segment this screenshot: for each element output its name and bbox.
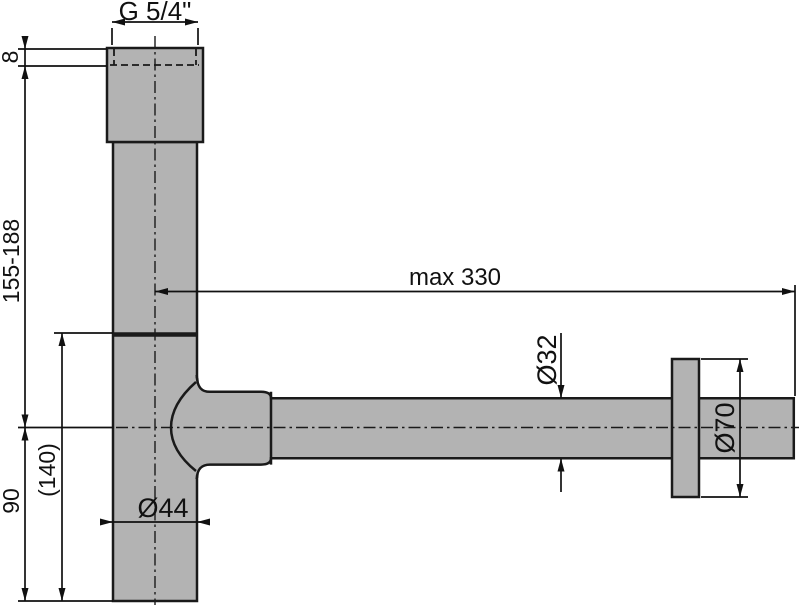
height-range-label: 155-188 [0,219,24,303]
thread-size-label: G 5/4" [119,0,192,26]
centerlines [116,36,799,605]
siphon-dimension-drawing: G 5/4" 8 155-188 max 330 (140) 90 Ø44 Ø3… [0,0,800,607]
thread-depth-label: 8 [0,51,23,64]
pipe-diameter-label: Ø32 [532,334,562,385]
siphon-parts [107,48,794,601]
cup-height-label: 90 [0,488,24,514]
depth-ref-label: (140) [34,443,60,497]
technical-drawing-page: G 5/4" 8 155-188 max 330 (140) 90 Ø44 Ø3… [0,0,800,607]
flange-diameter-label: Ø70 [710,402,740,453]
body-diameter-label: Ø44 [137,493,188,523]
max-reach-label: max 330 [409,264,501,291]
